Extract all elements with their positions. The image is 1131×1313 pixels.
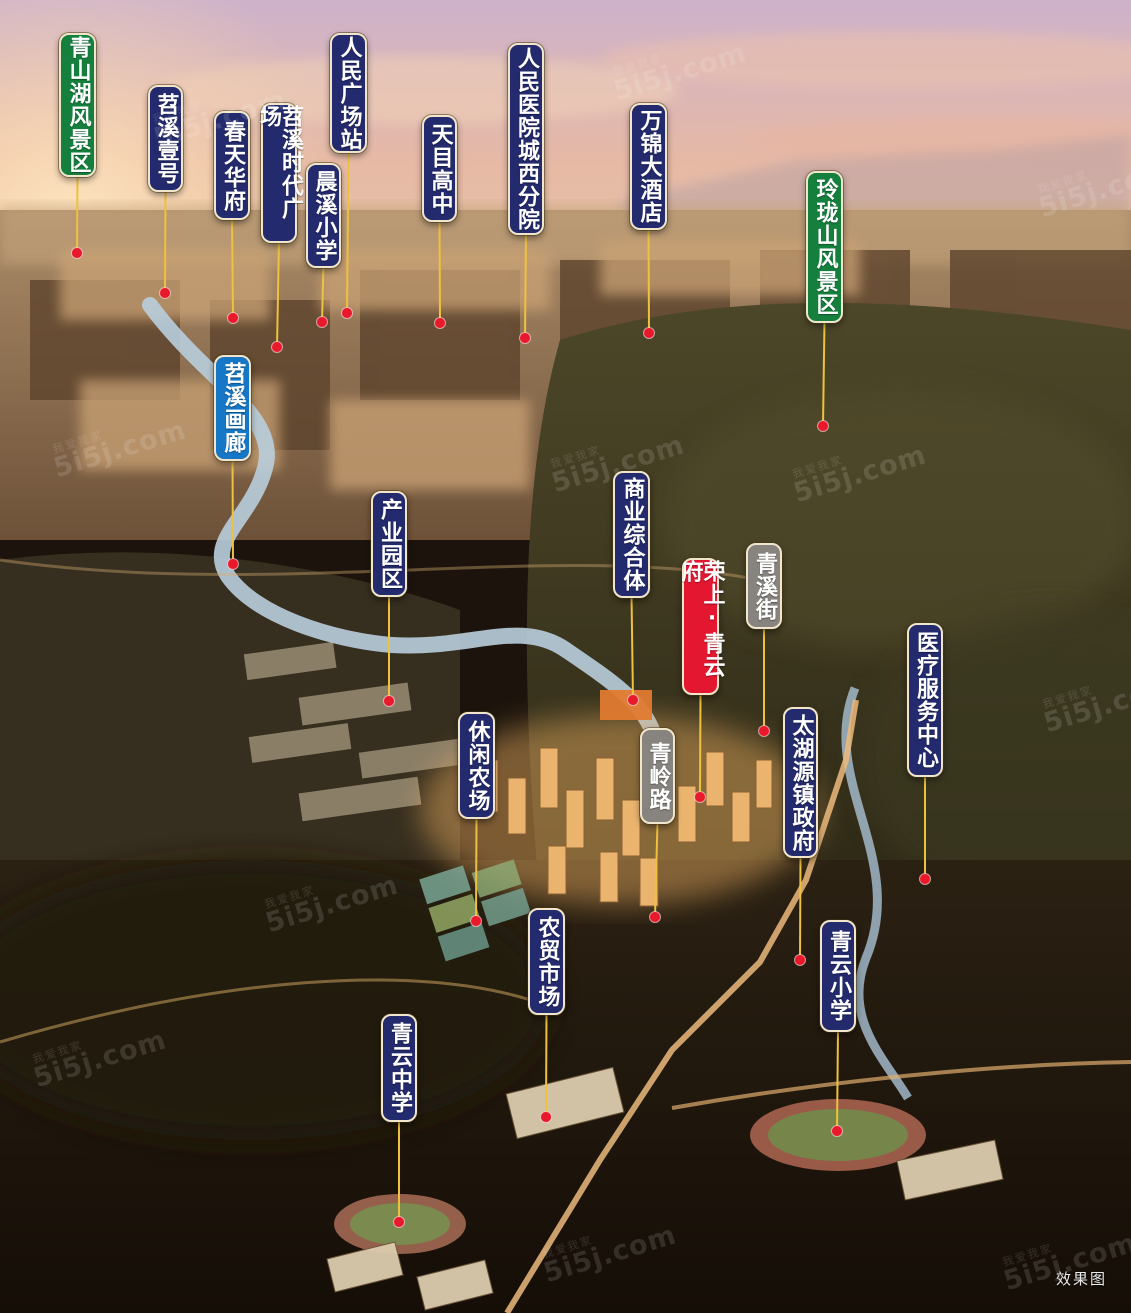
marker-medical-service-center: 医疗服务中心 xyxy=(907,623,943,777)
aerial-map: 青山湖风景区苕溪壹号春天华府苕溪时代广场人民广场站晨溪小学天目高中人民医院城西分… xyxy=(0,0,1131,1313)
marker-rongshang-qingyunfu: 荣上·青云府 xyxy=(682,558,719,695)
marker-industrial-park: 产业园区 xyxy=(371,491,407,597)
marker-tiaoxi-gallery: 苕溪画廊 xyxy=(214,355,251,461)
marker-tiaoxi-no1: 苕溪壹号 xyxy=(148,85,183,192)
marker-qingyun-primary-school: 青云小学 xyxy=(820,920,856,1032)
marker-qingling-road: 青岭路 xyxy=(640,728,675,824)
marker-taihuyuan-town-gov: 太湖源镇政府 xyxy=(783,707,818,858)
marker-leisure-farm: 休闲农场 xyxy=(458,712,495,819)
marker-wanjin-hotel: 万锦大酒店 xyxy=(630,103,667,230)
marker-tianmu-high-school: 天目高中 xyxy=(422,115,457,222)
marker-renmin-hospital-west-branch: 人民医院城西分院 xyxy=(508,43,544,235)
marker-chuntian-huafu: 春天华府 xyxy=(214,111,250,220)
marker-chenxi-primary-school: 晨溪小学 xyxy=(306,163,341,268)
marker-qingyun-middle-school: 青云中学 xyxy=(381,1014,417,1122)
marker-linglongshan-scenic: 玲珑山风景区 xyxy=(806,171,843,323)
marker-tiaoxi-times-plaza: 苕溪时代广场 xyxy=(261,103,297,243)
marker-qingxi-street: 青溪街 xyxy=(746,543,782,629)
marker-qingshanhu-scenic: 青山湖风景区 xyxy=(59,33,96,177)
marker-farmers-market: 农贸市场 xyxy=(528,908,565,1015)
markers-layer: 青山湖风景区苕溪壹号春天华府苕溪时代广场人民广场站晨溪小学天目高中人民医院城西分… xyxy=(0,0,1131,1313)
marker-renmin-square-station: 人民广场站 xyxy=(330,33,367,153)
render-disclaimer: 效果图 xyxy=(1056,1268,1107,1289)
marker-commercial-complex: 商业综合体 xyxy=(613,471,650,598)
